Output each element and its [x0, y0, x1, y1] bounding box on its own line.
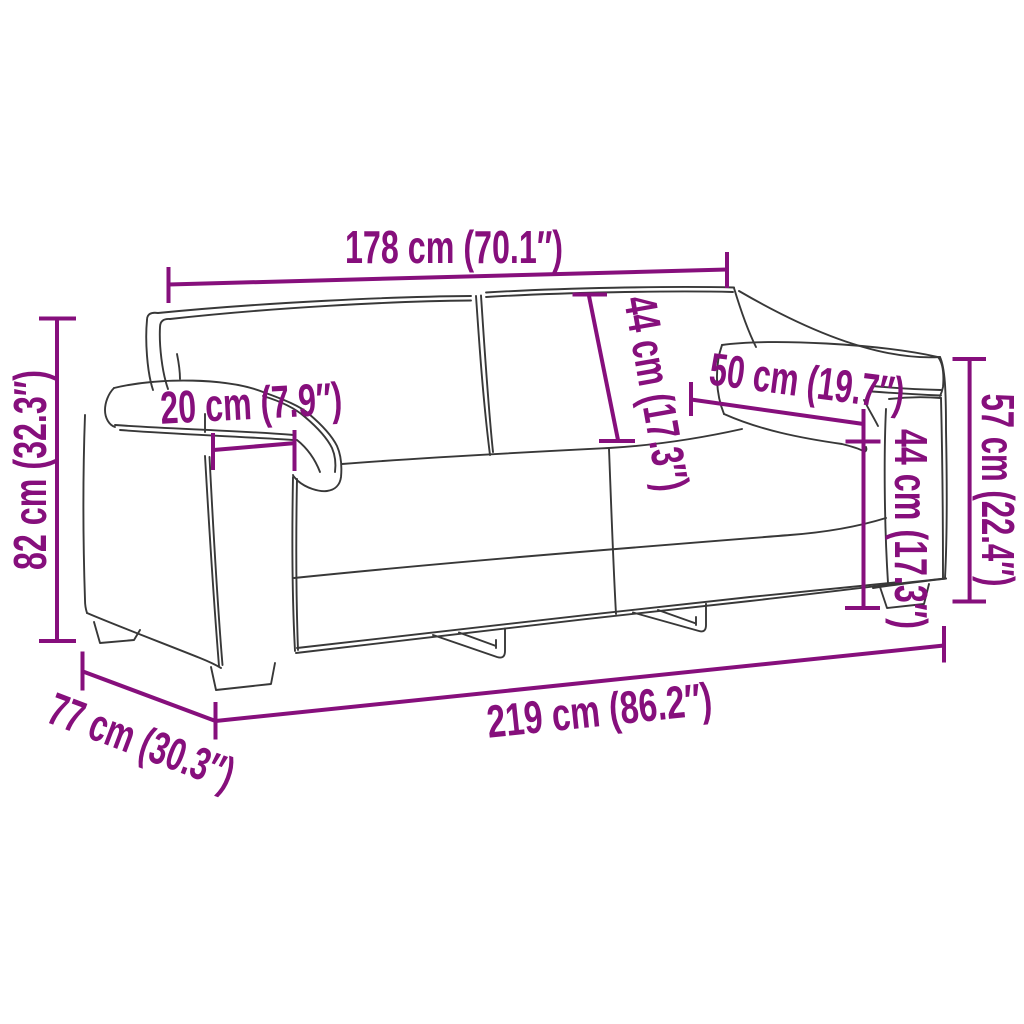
- svg-text:178 cm (70.1″): 178 cm (70.1″): [345, 221, 563, 273]
- svg-text:82 cm (32.3″): 82 cm (32.3″): [4, 370, 56, 570]
- svg-text:44 cm (17.3″): 44 cm (17.3″): [885, 429, 937, 629]
- svg-text:57 cm (22.4″): 57 cm (22.4″): [972, 394, 1024, 587]
- svg-text:20 cm (7.9″): 20 cm (7.9″): [159, 372, 343, 433]
